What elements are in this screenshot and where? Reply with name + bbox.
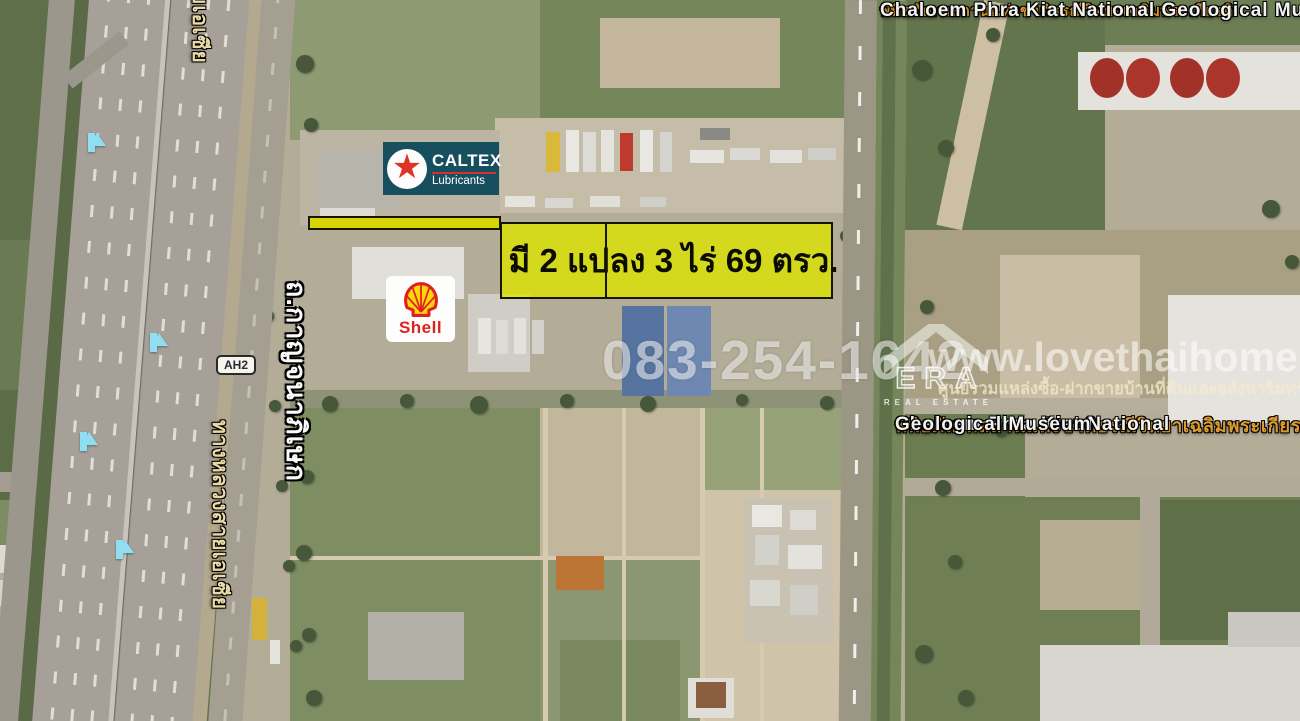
caltex-text: CALTEX Lubricants (432, 151, 502, 187)
tree (986, 28, 1000, 42)
arrow-stem (88, 133, 95, 152)
shell-pecten-icon (399, 280, 443, 320)
tree (400, 394, 414, 408)
website-tagline-watermark: ศูนย์รวมแหล่งซื้อ-ฝากขายบ้านที่ดินและอสั… (938, 376, 1300, 402)
asia-highway-label: ทางหลวงสายเอเซีย (203, 420, 236, 610)
truck (601, 130, 614, 172)
tree (304, 118, 318, 132)
truck (514, 318, 526, 354)
field (905, 0, 1105, 230)
arrow-stem (80, 432, 87, 451)
truck (583, 132, 596, 172)
caltex-star-icon: ★ (392, 150, 422, 184)
tree (736, 394, 748, 406)
truck (730, 148, 760, 160)
plot-highlight-strip (308, 216, 501, 230)
red-storage-tank (1170, 58, 1204, 98)
dirt-field (600, 18, 780, 88)
tree (560, 394, 574, 408)
red-storage-tank (1126, 58, 1160, 98)
field (560, 640, 680, 721)
shed (788, 545, 822, 569)
field-path (622, 408, 626, 721)
website-watermark: www.lovethaihome.com (928, 334, 1300, 381)
building (1228, 612, 1300, 647)
shed (750, 580, 780, 606)
red-storage-tank (1206, 58, 1240, 98)
truck (690, 150, 724, 163)
field (705, 400, 845, 490)
plot-divider-line (605, 224, 607, 297)
shed (790, 510, 816, 530)
caltex-subtitle: Lubricants (432, 175, 502, 187)
building-roof (696, 682, 726, 708)
tree (296, 545, 312, 561)
truck (496, 320, 508, 354)
tree (935, 480, 951, 496)
caltex-star-emblem: ★ (387, 149, 427, 189)
plot-highlight-box: มี 2 แปลง 3 ไร่ 69 ตรว. (500, 222, 833, 299)
tree (322, 396, 338, 412)
tree (296, 55, 314, 73)
local-road (905, 478, 1300, 496)
shell-name: Shell (399, 318, 442, 338)
truck (770, 150, 802, 163)
tree (290, 640, 302, 652)
truck (545, 198, 573, 208)
asia-highway-label-partial: ยเอเซีย (183, 0, 216, 64)
arrow-stem (150, 333, 157, 352)
truck (505, 196, 535, 207)
tree (1262, 200, 1280, 218)
truck (270, 640, 280, 664)
tree (915, 645, 933, 663)
caltex-name: CALTEX (432, 151, 502, 171)
orange-roof-house (556, 556, 604, 590)
tree (948, 555, 962, 569)
truck (590, 196, 620, 207)
field-path (543, 408, 548, 721)
museum-label-top-english: Chaloem Phra Kiat National Geological Mu… (880, 0, 1300, 22)
side-road-name-label: ถ.กาญจนาภิเษก (275, 281, 318, 482)
shed (790, 585, 818, 615)
tree (283, 560, 295, 572)
satellite-map: พิพิธภัณฑสถานแห่งชาติธรณีวิทยาเฉลิมพระเก… (0, 0, 1300, 721)
truck (478, 318, 491, 354)
tree (820, 396, 834, 410)
tree (306, 690, 322, 706)
warehouse (368, 612, 464, 680)
warehouse (1040, 645, 1300, 721)
caltex-red-line (432, 172, 496, 174)
truck (640, 197, 666, 207)
shed (752, 505, 782, 527)
field-path (290, 556, 540, 560)
truck (620, 133, 633, 171)
highway-shield-ah2: AH2 (216, 355, 256, 375)
museum-label-mid-english-line2: Geological Museum (895, 414, 1091, 436)
shed (755, 535, 779, 565)
tree (920, 300, 934, 314)
tree (302, 628, 316, 642)
truck (252, 598, 267, 640)
tree (470, 396, 488, 414)
truck (660, 132, 672, 172)
arrow-stem (116, 540, 123, 559)
truck (640, 130, 653, 172)
red-storage-tank (1090, 58, 1124, 98)
tree (640, 396, 656, 412)
tree (958, 690, 974, 706)
truck (532, 320, 544, 354)
tree (938, 140, 954, 156)
caltex-logo: ★ CALTEX Lubricants (383, 142, 499, 195)
truck (566, 130, 579, 172)
field-path (700, 400, 705, 721)
truck (700, 128, 730, 140)
shell-logo: Shell (386, 276, 455, 342)
tree (1285, 255, 1299, 269)
plot-size-label: มี 2 แปลง 3 ไร่ 69 ตรว. (495, 234, 839, 287)
truck (546, 132, 560, 172)
tree (912, 60, 932, 80)
truck (808, 148, 836, 160)
